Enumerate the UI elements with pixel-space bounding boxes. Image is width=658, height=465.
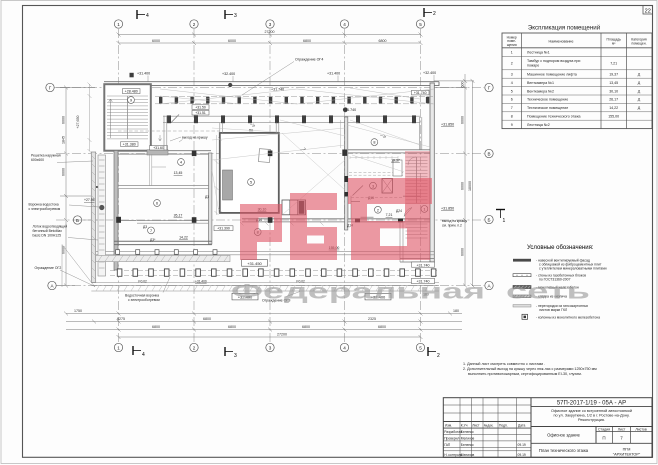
svg-text:1: 1 <box>511 51 513 55</box>
svg-text:2325: 2325 <box>368 317 376 321</box>
svg-text:К.Уч: К.Уч <box>461 423 468 427</box>
svg-text:Мелихов: Мелихов <box>461 436 475 440</box>
svg-text:6800: 6800 <box>379 39 387 43</box>
svg-text:+31.740: +31.740 <box>414 91 427 95</box>
svg-text:Техническое помещение: Техническое помещение <box>527 106 568 110</box>
svg-text:Техническое помещение: Техническое помещение <box>527 98 568 102</box>
svg-text:8: 8 <box>373 141 375 145</box>
svg-text:09.19: 09.19 <box>518 453 526 457</box>
svg-text:13,45: 13,45 <box>174 171 183 175</box>
svg-text:9: 9 <box>511 123 513 127</box>
svg-text:6000: 6000 <box>62 168 66 176</box>
svg-text:1. Данный лист смотреть совме: 1. Данный лист смотреть совместно с лист… <box>463 362 545 366</box>
svg-text:План технического этажа: План технического этажа <box>539 448 589 453</box>
svg-text:+31.51: +31.51 <box>195 111 206 115</box>
svg-text:выполнить противопожарным, сер: выполнить противопожарным, сертифицирова… <box>468 372 582 376</box>
svg-text:Венткамера №1: Венткамера №1 <box>527 81 554 85</box>
svg-text:ПК: ПК <box>249 129 253 133</box>
svg-text:4: 4 <box>343 22 346 27</box>
svg-text:Водосточная воронка: Водосточная воронка <box>125 294 159 298</box>
svg-text:6000: 6000 <box>461 248 465 256</box>
svg-text:155,00: 155,00 <box>608 115 619 119</box>
svg-text:ГАП: ГАП <box>444 443 451 447</box>
svg-text:Б: Б <box>487 217 490 222</box>
svg-text:Лестница №2: Лестница №2 <box>527 123 550 127</box>
svg-text:бетонный BetoMax: бетонный BetoMax <box>33 229 63 233</box>
svg-text:6800: 6800 <box>303 39 311 43</box>
svg-text:180: 180 <box>453 309 459 313</box>
svg-text:9: 9 <box>130 99 132 103</box>
svg-text:6: 6 <box>156 202 158 206</box>
svg-text:+32.400: +32.400 <box>222 72 235 76</box>
svg-text:Венткамера №2: Венткамера №2 <box>527 89 554 93</box>
svg-text:1: 1 <box>117 22 120 27</box>
svg-text:В: В <box>487 151 490 156</box>
svg-text:7,21: 7,21 <box>386 213 393 217</box>
svg-text:+31.50: +31.50 <box>195 106 206 110</box>
svg-text:1: 1 <box>117 345 120 350</box>
svg-text:Д3: Д3 <box>143 225 147 229</box>
svg-text:- колонны из монолитного желез: - колонны из монолитного железобетона <box>536 316 600 320</box>
svg-text:Машинное помещение лифта: Машинное помещение лифта <box>527 73 577 77</box>
svg-text:Реконструкция.: Реконструкция. <box>578 418 605 422</box>
svg-text:8: 8 <box>511 115 513 119</box>
svg-text:6000: 6000 <box>152 39 160 43</box>
svg-text:см. прим. п.2: см. прим. п.2 <box>442 224 462 228</box>
svg-text:+31.400: +31.400 <box>195 280 207 284</box>
svg-text:Разработал: Разработал <box>444 430 462 434</box>
svg-text:Лестница №1: Лестница №1 <box>527 51 550 55</box>
svg-text:+31.380: +31.380 <box>123 143 136 147</box>
svg-text:+31.740: +31.740 <box>416 263 429 267</box>
svg-text:с утеплителем минераловатными: с утеплителем минераловатными плитами <box>539 266 607 270</box>
svg-text:Офисное здание со встроенной а: Офисное здание со встроенной автостоянко… <box>551 409 632 413</box>
svg-text:Дата: Дата <box>518 423 525 427</box>
svg-text:+31.850: +31.850 <box>441 123 454 127</box>
svg-text:4: 4 <box>180 161 182 165</box>
svg-text:2: 2 <box>511 62 513 66</box>
svg-text:Листов: Листов <box>635 428 647 432</box>
svg-text:Б: Б <box>76 218 79 223</box>
svg-text:22: 22 <box>645 8 651 14</box>
svg-text:Проверил: Проверил <box>444 436 459 440</box>
svg-text:3: 3 <box>234 353 237 359</box>
svg-text:6000: 6000 <box>461 182 465 190</box>
svg-text:6800: 6800 <box>302 325 310 329</box>
svg-text:+28.480: +28.480 <box>125 90 138 94</box>
svg-text:13,45: 13,45 <box>609 81 618 85</box>
svg-text:3: 3 <box>234 13 237 19</box>
svg-text:14,22: 14,22 <box>609 106 618 110</box>
svg-text:сеть: сеть <box>506 280 590 304</box>
svg-text:4: 4 <box>511 81 513 85</box>
svg-text:Беленко: Беленко <box>461 430 474 434</box>
svg-text:2: 2 <box>193 22 196 27</box>
svg-text:Решетка наружная: Решетка наружная <box>31 154 61 158</box>
svg-text:Беленко: Беленко <box>461 443 474 447</box>
svg-text:3: 3 <box>511 73 513 77</box>
svg-text:2. Дополнительный выход на кр: 2. Дополнительный выход на крышу через л… <box>463 367 597 371</box>
svg-text:Лист: Лист <box>618 428 626 432</box>
svg-text:27200: 27200 <box>277 332 287 336</box>
svg-text:2: 2 <box>193 345 196 350</box>
svg-text:Ограждение ОГ4: Ограждение ОГ4 <box>295 58 323 62</box>
svg-text:600х600: 600х600 <box>31 158 44 162</box>
svg-text:2: 2 <box>437 353 440 359</box>
svg-text:57П-2017-1/19 - 05А - АР: 57П-2017-1/19 - 05А - АР <box>557 401 626 407</box>
svg-text:ПГМ: ПГМ <box>623 448 631 452</box>
svg-text:5: 5 <box>511 89 513 93</box>
svg-text:Стадия: Стадия <box>598 428 610 432</box>
svg-text:5: 5 <box>250 181 252 185</box>
svg-text:+27.95: +27.95 <box>84 198 95 202</box>
svg-text:Д24: Д24 <box>396 209 402 213</box>
svg-text:Ограждение ОГ2: Ограждение ОГ2 <box>35 266 62 270</box>
svg-text:Подп.: Подп. <box>499 423 508 427</box>
svg-text:2: 2 <box>433 11 436 17</box>
svg-text:6: 6 <box>511 98 513 102</box>
svg-text:"АРХИТЕКТОР": "АРХИТЕКТОР" <box>613 452 641 456</box>
svg-text:26,17: 26,17 <box>174 213 183 217</box>
svg-text:с электрообогревом: с электрообогревом <box>128 298 160 302</box>
svg-text:+31.450: +31.450 <box>247 261 262 266</box>
svg-text:19,37: 19,37 <box>609 73 618 77</box>
svg-text:+31.740: +31.740 <box>343 108 356 112</box>
svg-text:26,17: 26,17 <box>609 98 618 102</box>
svg-text:basic DN 100Н125: basic DN 100Н125 <box>33 234 62 238</box>
svg-text:6800: 6800 <box>228 325 236 329</box>
svg-text:6000: 6000 <box>461 116 465 124</box>
svg-text:№док.: №док. <box>484 423 494 427</box>
svg-text:+31.850: +31.850 <box>441 207 454 211</box>
svg-text:6800: 6800 <box>152 325 160 329</box>
svg-text:1: 1 <box>503 218 506 224</box>
svg-text:+31.400: +31.400 <box>137 72 150 76</box>
svg-text:листов марки ГКЛ: листов марки ГКЛ <box>539 308 567 312</box>
svg-text:Помещение технического этажа: Помещение технического этажа <box>527 115 581 119</box>
svg-text:27200: 27200 <box>265 30 275 34</box>
svg-text:выход на крышу: выход на крышу <box>442 219 467 223</box>
svg-text:1750: 1750 <box>74 309 82 313</box>
svg-text:5: 5 <box>419 22 422 27</box>
svg-text:i=0.02: i=0.02 <box>138 280 147 284</box>
svg-text:2: 2 <box>377 208 379 212</box>
svg-text:Лоток водоотводящий: Лоток водоотводящий <box>33 225 68 229</box>
svg-text:3: 3 <box>269 22 272 27</box>
svg-text:+31.390: +31.390 <box>217 227 230 231</box>
svg-text:помещен.: помещен. <box>632 42 647 46</box>
svg-text:6275: 6275 <box>117 317 125 321</box>
svg-text:Экспликация помещений: Экспликация помещений <box>528 25 601 32</box>
svg-text:+27,650: +27,650 <box>76 115 80 128</box>
svg-text:Федеральная: Федеральная <box>231 280 485 304</box>
svg-text:7: 7 <box>511 106 513 110</box>
svg-text:выход на крышу: выход на крышу <box>182 135 208 139</box>
svg-text:+31.400: +31.400 <box>327 72 340 76</box>
svg-text:щения: щения <box>507 43 517 47</box>
svg-text:14,22: 14,22 <box>179 236 188 240</box>
svg-text:6800: 6800 <box>203 317 211 321</box>
svg-text:+31.60: +31.60 <box>153 146 164 150</box>
svg-text:19,37: 19,37 <box>391 158 400 162</box>
svg-text:с электрообогревом: с электрообогревом <box>29 207 61 211</box>
svg-text:Офисное здание: Офисное здание <box>547 433 581 438</box>
svg-text:+31.740: +31.740 <box>271 88 284 92</box>
svg-text:6800: 6800 <box>378 325 386 329</box>
svg-text:4: 4 <box>343 345 346 350</box>
svg-text:+32.400: +32.400 <box>423 71 436 75</box>
svg-text:7: 7 <box>150 229 152 233</box>
svg-text:Условные обозначения:: Условные обозначения: <box>527 245 594 251</box>
svg-text:пожаре: пожаре <box>527 63 539 67</box>
svg-text:Д3: Д3 <box>205 195 209 199</box>
svg-text:Изм.: Изм. <box>445 423 452 427</box>
svg-text:по ул. Закруткина, 1/2 в г. Ро: по ул. Закруткина, 1/2 в г. Ростове-на-Д… <box>553 414 629 418</box>
svg-text:Д3*: Д3* <box>150 238 156 242</box>
svg-text:7,21: 7,21 <box>610 62 617 66</box>
svg-text:Мелихов: Мелихов <box>461 453 475 457</box>
svg-text:Лист: Лист <box>472 423 480 427</box>
svg-text:18000: 18000 <box>468 181 472 191</box>
svg-text:Наименование: Наименование <box>549 39 574 43</box>
svg-text:4: 4 <box>142 352 145 358</box>
svg-text:600: 600 <box>461 82 465 88</box>
svg-text:5: 5 <box>419 345 422 350</box>
svg-text:6000: 6000 <box>62 116 66 124</box>
svg-text:1845: 1845 <box>62 136 66 144</box>
svg-text:6000: 6000 <box>228 39 236 43</box>
svg-text:3: 3 <box>269 345 272 350</box>
svg-text:09.19: 09.19 <box>518 443 526 447</box>
svg-text:4: 4 <box>146 13 149 19</box>
svg-text:П: П <box>602 436 605 441</box>
svg-text:Тамбур с подпором воздуха при: Тамбур с подпором воздуха при <box>527 59 580 63</box>
svg-text:Воронка водостока: Воронка водостока <box>29 203 59 207</box>
svg-text:30,10: 30,10 <box>609 89 618 93</box>
